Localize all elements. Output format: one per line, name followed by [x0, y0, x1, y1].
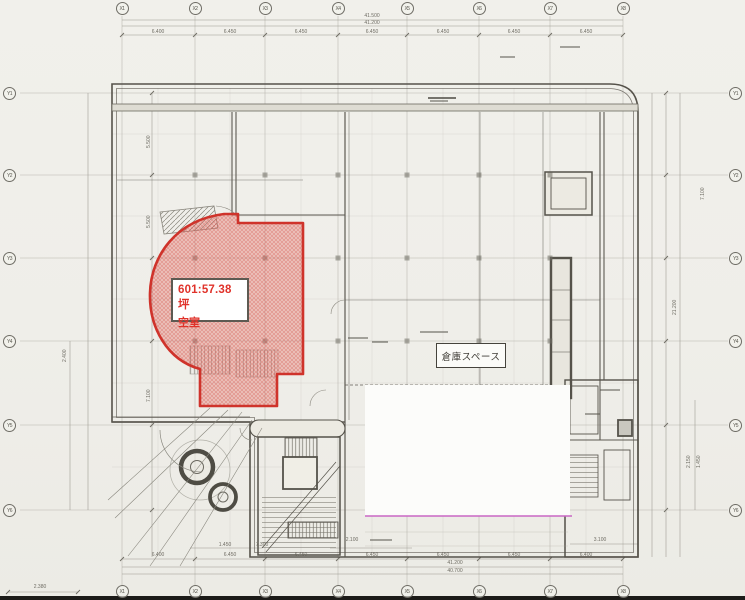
- grid-bubble-bottom: X4: [332, 585, 345, 598]
- grid-bubble-bottom: X5: [401, 585, 414, 598]
- dim-top-seg: 6.450: [580, 29, 593, 35]
- dim-top-seg: 6.450: [295, 29, 308, 35]
- dim-right: 7.100: [700, 187, 706, 200]
- grid-bubble-bottom: X3: [259, 585, 272, 598]
- grid-bubble-bottom: X7: [544, 585, 557, 598]
- sheet-edge: [0, 596, 745, 600]
- dim-bottom-extra: 2.100: [346, 537, 359, 543]
- dim-bottom-seg: 6.450: [508, 552, 521, 558]
- unit-vacancy-text: 空室: [178, 314, 242, 330]
- dim-bottom-extra: 3.100: [594, 537, 607, 543]
- grid-bubble-top: X8: [617, 2, 630, 15]
- grid-bubble-left: Y6: [3, 504, 16, 517]
- dim-bottom-seg: 6.450: [437, 552, 450, 558]
- shaft: [551, 258, 571, 398]
- dim-top-seg: 6.450: [508, 29, 521, 35]
- grid-bubble-right: Y6: [729, 504, 742, 517]
- entrance-canopy: [250, 420, 345, 437]
- grid-bubble-left: Y1: [3, 87, 16, 100]
- dim-bottom-extra: 1.450: [219, 542, 232, 548]
- warehouse-label: 倉庫スペース: [436, 343, 506, 368]
- grid-bubble-right: Y3: [729, 252, 742, 265]
- dim-left: 5.500: [146, 135, 152, 148]
- grid-bubble-bottom: X2: [189, 585, 202, 598]
- grid-bubble-right: Y2: [729, 169, 742, 182]
- grid-bubble-top: X4: [332, 2, 345, 15]
- dim-bottom-left: 2.380: [34, 584, 47, 590]
- dim-left: 5.500: [146, 215, 152, 228]
- dim-left: 2.400: [62, 349, 68, 362]
- grid-bubble-bottom: X8: [617, 585, 630, 598]
- grid-bubble-bottom: X6: [473, 585, 486, 598]
- dim-right: 1.450: [696, 455, 702, 468]
- grid-bubble-bottom: X1: [116, 585, 129, 598]
- dim-bottom-extra: 7.300: [256, 542, 269, 548]
- whiteout-area: [365, 385, 572, 546]
- dim-bottom-seg: 6.450: [295, 552, 308, 558]
- grid-bubble-top: X5: [401, 2, 414, 15]
- grid-bubble-top: X1: [116, 2, 129, 15]
- dim-right: 21.200: [672, 300, 678, 315]
- unit-area-text: 601:57.38坪: [178, 284, 242, 312]
- floorplan-drawing: [0, 0, 745, 600]
- dim-top-seg: 6.450: [224, 29, 237, 35]
- grid-bubble-left: Y4: [3, 335, 16, 348]
- grid-bubble-top: X6: [473, 2, 486, 15]
- floorplan-canvas: X1 X2 X3 X4 X5 X6 X7 X8 X1 X2 X3 X4 X5 X…: [0, 0, 745, 600]
- dim-bottom-total-1: 41.200: [447, 560, 462, 566]
- unit-601-label[interactable]: 601:57.38坪 空室: [171, 278, 249, 322]
- dim-bottom-total-2: 40.700: [447, 568, 462, 574]
- dim-top-seg: 6.450: [437, 29, 450, 35]
- grid-bubble-top: X7: [544, 2, 557, 15]
- plaza-circles: [108, 408, 262, 566]
- legend-block: [288, 522, 338, 538]
- grid-bubble-top: X2: [189, 2, 202, 15]
- dim-right: 2.150: [686, 455, 692, 468]
- dim-top-seg: 6.400: [152, 29, 165, 35]
- dim-bottom-seg: 6.450: [224, 552, 237, 558]
- dim-bottom-seg: 6.400: [580, 552, 593, 558]
- dim-left: 7.100: [146, 389, 152, 402]
- grid-bubble-left: Y2: [3, 169, 16, 182]
- dim-bottom-seg: 6.400: [152, 552, 165, 558]
- grid-bubble-right: Y4: [729, 335, 742, 348]
- grid-bubble-top: X3: [259, 2, 272, 15]
- grid-bubble-left: Y3: [3, 252, 16, 265]
- dim-top-total-2: 41.200: [364, 20, 379, 26]
- grid-bubble-right: Y1: [729, 87, 742, 100]
- dim-top-total-1: 41.500: [364, 13, 379, 19]
- grid-bubble-right: Y5: [729, 419, 742, 432]
- dim-bottom-seg: 6.450: [366, 552, 379, 558]
- grid-bubble-left: Y5: [3, 419, 16, 432]
- dim-top-seg: 6.450: [366, 29, 379, 35]
